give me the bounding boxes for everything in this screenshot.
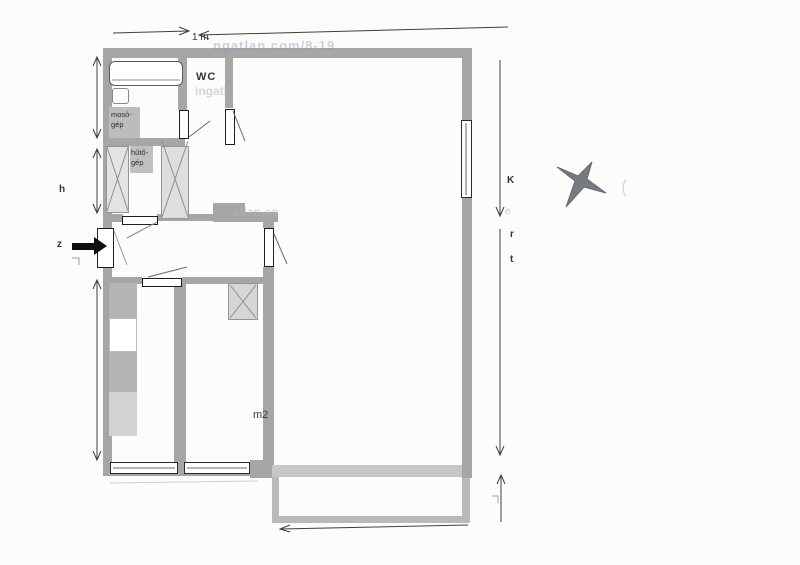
washing-machine-label: mosó- gép xyxy=(111,110,132,130)
refrigerator-label-line1: hűtő- xyxy=(131,148,148,158)
dim-label-r: r xyxy=(510,230,514,240)
dim-label-k: K xyxy=(507,176,514,186)
line-overlay xyxy=(0,0,800,565)
watermark-wc: ingatl xyxy=(195,85,227,97)
scale-label: 1 m xyxy=(192,33,209,43)
refrigerator-label-line2: gép xyxy=(131,158,148,168)
detail-lines xyxy=(72,80,626,503)
floorplan-canvas: 1 m WC mosó- gép hűtő- gép m2 h z K e r … xyxy=(0,0,800,565)
dimension-lines xyxy=(93,27,508,532)
area-label: m2 xyxy=(253,410,268,421)
watermark-top: ngatlan.com/8-19 xyxy=(213,39,335,52)
entrance-arrow-icon xyxy=(72,237,107,255)
dim-label-z: z xyxy=(57,240,62,250)
washing-machine-label-line1: mosó- xyxy=(111,110,132,120)
compass-star-icon xyxy=(557,162,606,207)
refrigerator-label: hűtő- gép xyxy=(131,148,148,168)
watermark-hall: atlan.co xyxy=(233,206,278,218)
dim-label-e: e xyxy=(505,207,511,217)
door-swing-lines xyxy=(114,111,287,277)
dim-label-t: t xyxy=(510,255,513,265)
washing-machine-label-line2: gép xyxy=(111,120,132,130)
wc-label: WC xyxy=(196,72,216,83)
dim-label-h: h xyxy=(59,185,65,195)
cabinet-x-marks xyxy=(107,141,256,318)
